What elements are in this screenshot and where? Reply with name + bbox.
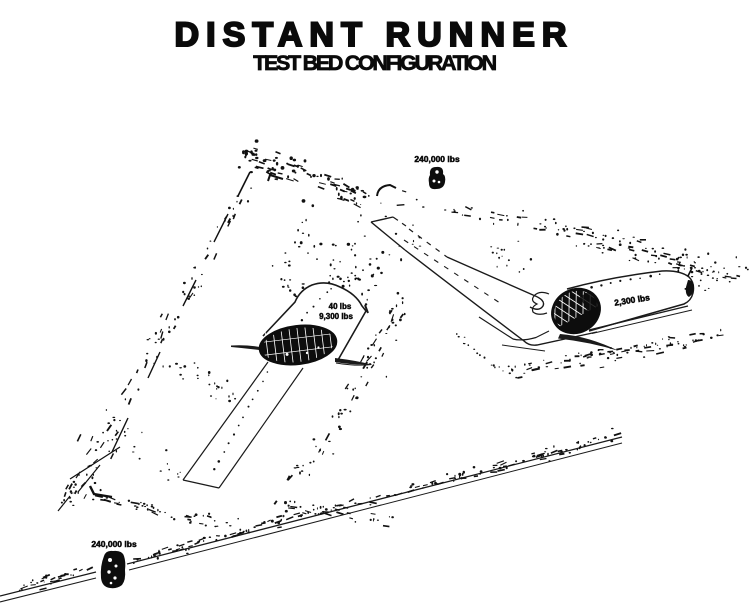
svg-text:40 lbs: 40 lbs xyxy=(329,302,352,311)
svg-text:240,000 lbs: 240,000 lbs xyxy=(91,539,137,549)
svg-text:9,300 lbs: 9,300 lbs xyxy=(319,312,353,321)
svg-text:240,000 lbs: 240,000 lbs xyxy=(414,154,460,164)
svg-text:DISTANT RUNNER: DISTANT RUNNER xyxy=(174,16,573,54)
svg-text:TEST BED CONFIGURATION: TEST BED CONFIGURATION xyxy=(253,51,496,75)
